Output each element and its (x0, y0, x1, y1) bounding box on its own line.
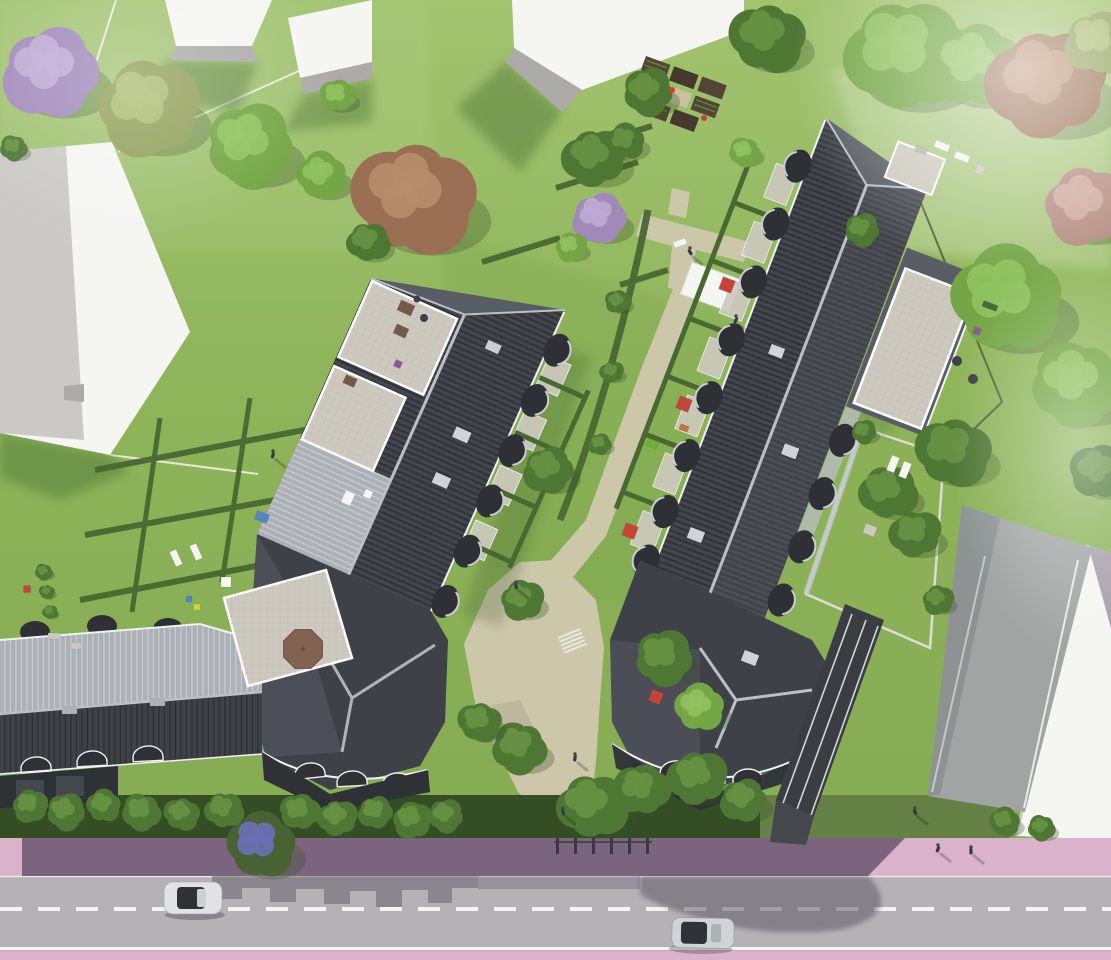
site-plan-canvas (0, 0, 1111, 960)
atmosphere-haze (0, 0, 1111, 960)
print-wash (0, 0, 1111, 960)
aerial-site-rendering (0, 0, 1111, 960)
